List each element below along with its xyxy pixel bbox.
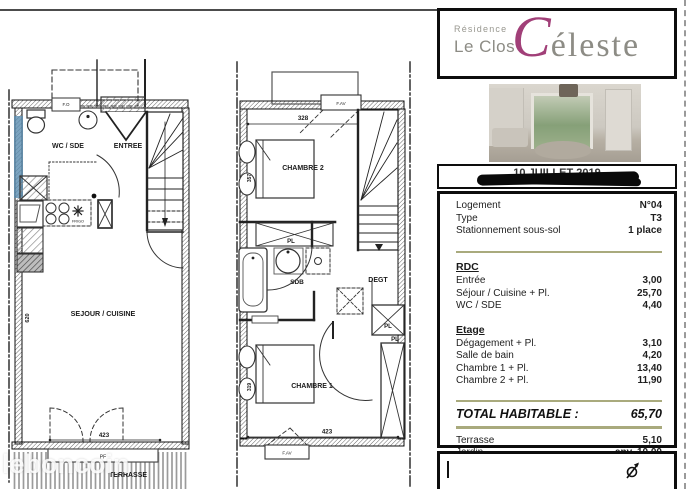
room-label-chambre2: CHAMBRE 2 [282,165,324,172]
area-value: 13,40 [637,363,662,376]
area-value: 25,70 [637,288,662,301]
dim-328: 328 [298,115,309,122]
brand-logo: Céleste [512,7,640,67]
page-edge [684,0,686,489]
total-label: TOTAL HABITABLE : [456,407,579,421]
area-row: WC / SDE 4,40 [456,300,662,313]
total-row: TOTAL HABITABLE : 65,70 [456,407,662,421]
area-label: Séjour / Cuisine + Pl. [456,288,550,301]
floor-plan-sheet: F.O [0,0,692,489]
area-value: 4,40 [643,300,662,313]
area-label: WC / SDE [456,300,502,313]
brand-residence: Résidence [454,24,515,34]
area-value: 3,00 [643,275,662,288]
brand-left: Résidence Le Clos [454,24,515,57]
interior-photo [489,84,641,162]
footer-box [437,451,677,489]
extra-value: 5,10 [643,435,662,448]
room-label-degt: DEGT [368,277,388,284]
extra-label: Terrasse [456,435,494,448]
info-value: N°04 [640,200,662,213]
north-arrow-icon [624,459,642,481]
dim-357: 357 [247,174,253,183]
section-title-rdc: RDC [456,261,662,273]
section-title-etage: Etage [456,324,662,336]
info-row-type: Type T3 [456,213,662,226]
photo-dining-table [535,141,591,159]
closet-pl-label-2: PL [384,324,392,330]
dim-319: 319 [247,383,253,392]
info-row-logement: Logement N°04 [456,200,662,213]
leboncoin-watermark: leboncoin [2,449,130,480]
info-value: T3 [650,213,662,226]
photo-pendant-lamp [559,84,578,97]
brand-name: Le Clos [454,37,515,57]
brand-header-box: Résidence Le Clos Céleste [437,8,677,79]
closet-pl-label-1: PL [287,239,295,245]
extra-row-terrasse: Terrasse 5,10 [456,435,662,448]
room-label-entree: ENTREE [114,143,143,150]
dim-620: 620 [25,313,31,322]
area-row: Salle de bain 4,20 [456,350,662,363]
window-fav-bottom-label: F.AV [282,451,291,456]
room-label-sejour: SEJOUR / CUISINE [71,309,136,318]
area-row: Chambre 1 + Pl. 13,40 [456,363,662,376]
info-row-stationnement: Stationnement sous-sol 1 place [456,225,662,238]
stairs-rdc [147,112,183,230]
plan-rdc: F.O [9,60,189,489]
closet-pl-label-3: PL [391,337,399,343]
window-fo-label: F.O [62,102,70,107]
dim-423-etage: 423 [322,429,333,436]
cursor-mark [447,461,449,478]
photo-door [605,89,632,151]
area-value: 3,10 [643,338,662,351]
area-value: 4,20 [643,350,662,363]
area-label: Entrée [456,275,485,288]
area-row: Entrée 3,00 [456,275,662,288]
divider [456,251,662,254]
dim-423-rdc: 423 [99,432,110,439]
plan-etage: F.AV 328 [237,62,410,489]
room-label-chambre1: CHAMBRE 1 [291,383,333,390]
info-label: Type [456,213,478,226]
area-label: Chambre 1 + Pl. [456,363,529,376]
total-value: 65,70 [631,407,662,421]
logo-rest: éleste [551,27,640,64]
stairs-etage [358,110,398,251]
area-row: Dégagement + Pl. 3,10 [456,338,662,351]
info-label: Logement [456,200,500,213]
frigo-symbol [73,206,83,216]
area-value: 11,90 [638,375,662,388]
area-label: Salle de bain [456,350,514,363]
info-value: 1 place [628,225,662,238]
area-label: Chambre 2 + Pl. [456,375,529,388]
area-row: Séjour / Cuisine + Pl. 25,70 [456,288,662,301]
areas-table: Logement N°04 Type T3 Stationnement sous… [437,191,677,448]
divider [456,426,662,429]
area-row: Chambre 2 + Pl. 11,90 [456,375,662,388]
info-label: Stationnement sous-sol [456,225,561,238]
divider [456,400,662,403]
frigo-label: FRIGO [72,220,84,224]
date-bar: 10 JUILLET 2019 [437,164,677,189]
area-label: Dégagement + Pl. [456,338,536,351]
floor-plans-drawing: F.O [0,0,437,489]
photo-sofa [492,128,528,147]
window-fav-top-label: F.AV [336,101,345,106]
logo-initial: C [512,4,551,69]
room-label-wc-sde: WC / SDE [52,143,84,150]
